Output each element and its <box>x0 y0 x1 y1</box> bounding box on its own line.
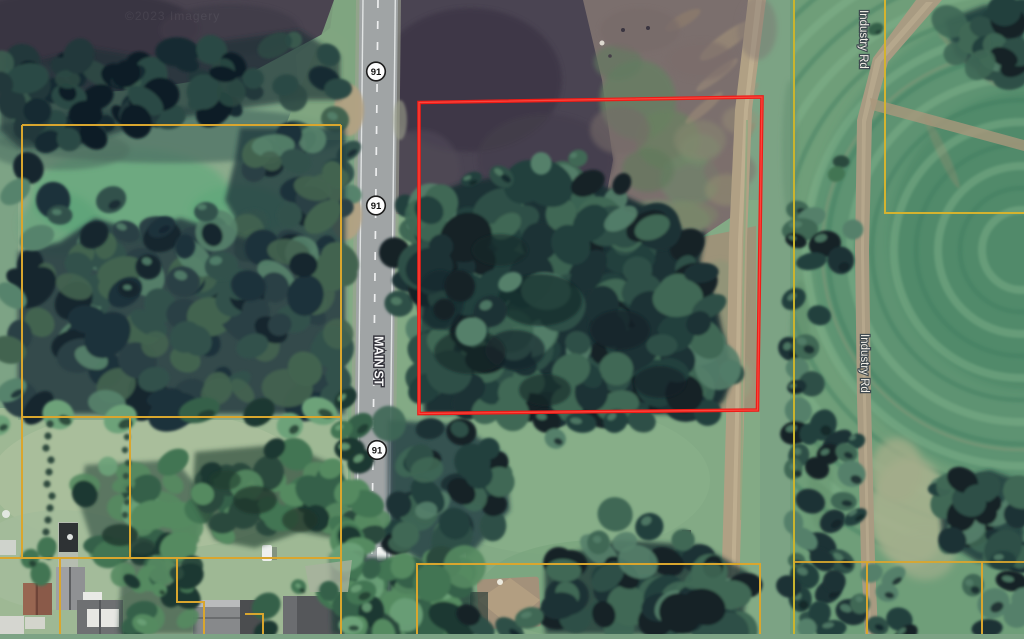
svg-text:91: 91 <box>372 445 383 456</box>
svg-text:©2023 Imagery: ©2023 Imagery <box>125 9 220 23</box>
svg-text:91: 91 <box>371 67 382 78</box>
svg-text:Industry Rd: Industry Rd <box>858 334 870 393</box>
svg-text:91: 91 <box>371 201 382 212</box>
svg-text:MAIN ST: MAIN ST <box>372 336 386 387</box>
svg-text:Industry Rd: Industry Rd <box>857 10 869 69</box>
